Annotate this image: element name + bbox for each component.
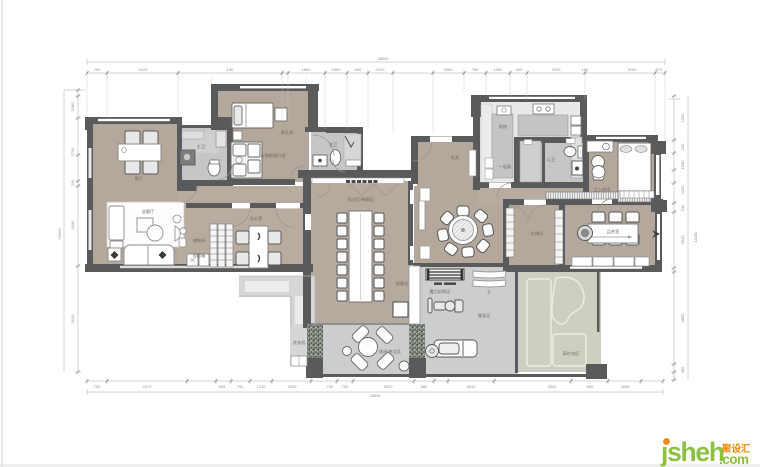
svg-text:餐厅: 餐厅 xyxy=(135,175,143,182)
svg-text:办公室: 办公室 xyxy=(250,215,263,222)
svg-text:3050: 3050 xyxy=(621,384,631,389)
svg-text:高尔夫区: 高尔夫区 xyxy=(563,350,580,357)
svg-text:700: 700 xyxy=(94,67,101,72)
svg-text:4800: 4800 xyxy=(680,313,685,323)
svg-text:4070: 4070 xyxy=(143,384,153,389)
svg-text:休闲/茶点区: 休闲/茶点区 xyxy=(379,348,401,355)
svg-text:4510: 4510 xyxy=(467,384,477,389)
svg-text:一层板: 一层板 xyxy=(499,163,512,170)
svg-text:530: 530 xyxy=(680,204,685,211)
svg-text:厨房: 厨房 xyxy=(499,123,507,130)
svg-text:2320: 2320 xyxy=(680,185,685,195)
svg-text:1210: 1210 xyxy=(257,384,267,389)
svg-text:採墨台: 採墨台 xyxy=(396,280,409,287)
svg-text:5190: 5190 xyxy=(70,314,75,324)
svg-text:700: 700 xyxy=(342,384,349,389)
svg-text:储物间: 储物间 xyxy=(193,237,206,244)
svg-text:11580: 11580 xyxy=(693,231,698,243)
svg-text:上: 上 xyxy=(487,288,491,294)
svg-text:主卫: 主卫 xyxy=(197,143,205,149)
svg-text:780: 780 xyxy=(472,67,479,72)
svg-text:2470: 2470 xyxy=(376,67,386,72)
svg-text:480: 480 xyxy=(680,366,685,373)
svg-text:6180: 6180 xyxy=(70,220,75,230)
svg-text:标识厅/畅聊区: 标识厅/畅聊区 xyxy=(348,196,374,203)
svg-text:2060: 2060 xyxy=(444,67,454,72)
svg-text:品茶室: 品茶室 xyxy=(607,228,620,235)
svg-text:2910: 2910 xyxy=(552,67,562,72)
svg-text:聚设汇: 聚设汇 xyxy=(721,443,751,455)
svg-text:150: 150 xyxy=(582,67,589,72)
svg-text:公卫: 公卫 xyxy=(547,157,555,162)
svg-text:580: 580 xyxy=(587,384,594,389)
svg-text:28030: 28030 xyxy=(377,56,389,61)
svg-text:保险箱: 保险箱 xyxy=(193,252,206,259)
svg-text:洗衣机: 洗衣机 xyxy=(293,339,306,346)
svg-text:健身区: 健身区 xyxy=(478,312,491,319)
svg-text:23900: 23900 xyxy=(57,228,62,240)
svg-text:2730: 2730 xyxy=(70,147,75,157)
svg-text:240: 240 xyxy=(70,179,75,186)
svg-text:2400: 2400 xyxy=(332,67,342,72)
svg-text:养生阁: 养生阁 xyxy=(281,129,294,136)
svg-text:2100: 2100 xyxy=(288,384,298,389)
svg-text:700: 700 xyxy=(94,384,101,389)
svg-text:4570: 4570 xyxy=(384,384,394,389)
svg-text:1580: 1580 xyxy=(70,102,75,112)
svg-text:工人房间: 工人房间 xyxy=(594,186,611,193)
svg-text:400: 400 xyxy=(516,67,523,72)
svg-text:3140: 3140 xyxy=(628,67,638,72)
svg-text:玄关: 玄关 xyxy=(451,154,459,161)
svg-text:560: 560 xyxy=(355,67,362,72)
svg-text:700: 700 xyxy=(237,384,244,389)
svg-text:680: 680 xyxy=(421,384,428,389)
svg-text:28030: 28030 xyxy=(369,393,381,398)
svg-text:魔力训练区: 魔力训练区 xyxy=(430,288,451,295)
svg-text:740: 740 xyxy=(327,384,334,389)
svg-text:礼物间: 礼物间 xyxy=(531,230,544,237)
svg-text:905: 905 xyxy=(219,384,226,389)
svg-text:2640: 2640 xyxy=(680,235,685,245)
svg-text:云鬓梳妆行宫: 云鬓梳妆行宫 xyxy=(260,152,285,159)
svg-text:3520: 3520 xyxy=(548,384,558,389)
svg-text:会客厅: 会客厅 xyxy=(142,208,155,215)
svg-text:3470: 3470 xyxy=(139,67,149,72)
svg-text:1500: 1500 xyxy=(680,160,685,170)
svg-text:1850: 1850 xyxy=(302,67,312,72)
svg-text:570: 570 xyxy=(656,67,663,72)
svg-text:1000: 1000 xyxy=(680,113,685,123)
svg-text:1350: 1350 xyxy=(494,67,504,72)
svg-text:次卫: 次卫 xyxy=(329,141,337,148)
svg-text:240: 240 xyxy=(680,143,685,150)
svg-text:140: 140 xyxy=(227,67,234,72)
